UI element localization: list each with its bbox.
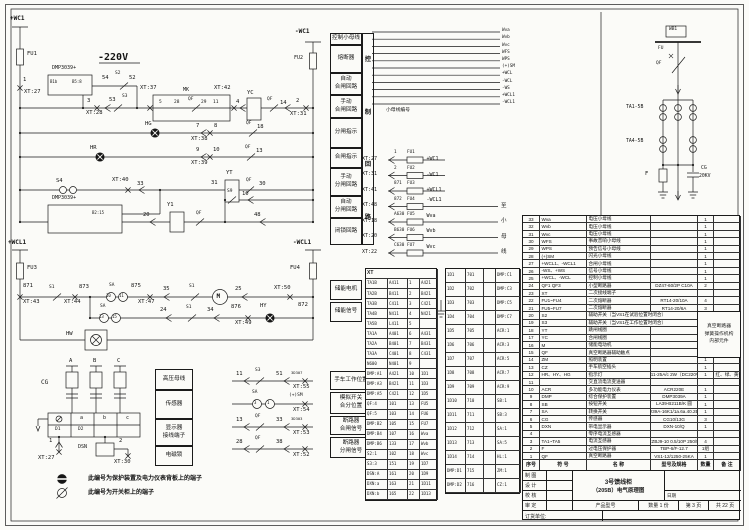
aux-table-cell: CZ:1 [496,479,521,493]
xt-table-cell: 1D1 [420,369,438,379]
aux-table-cell: ACR:9 [496,381,521,395]
to-bus-char: 线 [501,250,507,256]
wire-label: A [69,359,72,365]
xt-table-cell: 13 [408,400,420,410]
xt-table-cell: S2:1 [366,450,388,460]
fn-box-hv-bus: 高压母线 [155,369,193,390]
part-symbol: -WS、+WS [540,268,587,275]
aux-table-cell [484,465,496,479]
titleblock-order-unit: 订货单位: [523,511,603,521]
part-no: 25 [523,275,540,282]
part-note [714,364,741,371]
part-spec: RT14-20/10A [651,297,698,304]
part-no: 31 [523,231,540,238]
fn-box-display-terminal: 显示器接线端子 [155,419,193,446]
wire-label: Y1 [167,203,174,209]
xt-table-cell: DMP:B4 [366,430,388,440]
xt-table-cell: A421 [420,279,438,289]
drawing-title: 3号馈线柜 [605,477,632,486]
fuse-row-name: FU2 [407,167,415,171]
xt-table-cell: 7 [408,339,420,349]
part-no: 32 [523,223,540,230]
aux-table-cell: SB:1 [496,395,521,409]
aux-table-cell [484,409,496,423]
part-note [714,409,741,416]
aux-table-cell: DMP:C3 [496,283,521,297]
part-note [714,394,741,401]
part-no: 2 [523,446,540,453]
xt-table-cell: A421 [388,369,408,379]
part-note [714,246,741,253]
xt-table-cell: N401 [388,359,408,369]
aux-table-cell [484,269,496,283]
fuse-row-bus: -WCL1 [427,198,442,203]
parts-header-cell: 名 称 [587,460,651,470]
wire-label: S1 [49,286,54,291]
xt-table-cell: TA1B [366,279,388,289]
part-note [714,416,741,423]
fuse-row-wire-number: 2 [394,167,397,171]
xt-table-cell: 103 [388,410,408,420]
wire-label: QF [255,437,260,442]
aux-table-cell: 1D3 [446,297,466,311]
part-name: 事故音响小母线 [587,238,651,245]
part-spec [651,364,698,371]
aux-table-cell [484,437,496,451]
part-symbol: HR、HY、HG [540,372,587,379]
xt-table-cell: C401 [388,349,408,359]
part-symbol: ACR [540,386,587,393]
aux-table-cell: 708 [466,367,484,381]
parts-header-cell: 备 注 [714,460,741,470]
bus-line-label: Wva [502,29,510,33]
part-note [714,401,741,408]
titleblock-date-label: 日期 [665,491,741,501]
to-bus-char: 至 [501,204,507,210]
wire-label: 28 [174,101,179,106]
xt-table-cell: Wvc [420,450,438,460]
aux-table-cell: DMP:C7 [496,311,521,325]
wire-label: XT:37 [140,86,157,92]
xt-table-cell: 101 [388,400,408,410]
part-name: 小型断路器 [587,283,651,290]
wire-label: c [126,416,129,421]
wire-label: 24 [160,308,167,314]
wire-label: +WCL1 [8,240,26,246]
wire-label: XT:42 [214,86,231,92]
sl-arrester-label: F [645,172,648,178]
sl-ct1-label: TA1-5B [626,106,643,111]
part-name: 传感器 [587,416,651,423]
aux-table-cell: DMP:C5 [496,297,521,311]
part-qty: 4 [698,438,714,445]
aux-table-cell: 1D1 [446,269,466,283]
wire-label: 872 [298,303,308,309]
fn-box-close-indication: 合闸指示 [330,148,362,168]
xt-table-cell: 102 [388,450,408,460]
part-spec [651,223,698,230]
part-name: 带电显示器 [587,423,651,430]
fn-box-control-bus: 控制小母线 [330,33,362,45]
fuse-row-name: FU4 [407,198,415,202]
fuse-row-bus: Wvc [427,245,436,250]
xt-table-cell: 1 [408,279,420,289]
aux-table-cell [484,325,496,339]
xt-table-cell: C431 [420,349,438,359]
part-spec: CG10/13G [651,416,698,423]
xt-table-cell: TA1A [366,329,388,339]
part-spec [651,246,698,253]
part-no: 22 [523,297,540,304]
wire-label: -WCL1 [293,240,311,246]
xt-table-cell: TA3B [366,299,388,309]
part-symbol: S3 [540,320,587,327]
aux-table-cell: 1D4 [446,311,466,325]
to-bus-char: 母 [501,235,507,241]
part-qty: 1 [698,238,714,245]
fn-box-auto-trip: 自动分闸回路 [330,196,362,218]
xt-table-cell: 9 [408,359,420,369]
wire-label: 5 [159,101,162,106]
xt-table-cell: 6 [408,329,420,339]
aux-table-cell: 1D11 [446,409,466,423]
part-note [714,253,741,260]
aux-table-cell [484,311,496,325]
xt-table-cell: 1D9 [420,470,438,480]
part-name: 辅助开关（当VS1在工作位置时闭合） [587,320,698,327]
part-qty: 1 [698,394,714,401]
aux-table-cell [484,353,496,367]
part-name: 转换开关 [587,409,651,416]
bus-line-label: WPS [502,58,510,62]
schematic-sheet: +WC1FU11XT:27-220VDMP3039+B1bB5:83XT:285… [0,0,749,530]
wire-label: HG [145,122,152,128]
xt-table-cell: 107 [388,430,408,440]
xt-table-cell: 2 [408,289,420,299]
wire-label: 3 [87,99,90,105]
aux-table-cell: DMP:D2 [446,479,466,493]
bus-line-label: Wvc [502,44,510,48]
part-qty [698,431,714,438]
wire-label: 10 [242,192,249,198]
part-qty: 1组 [698,446,714,453]
xt-table-cell: N411 [388,309,408,319]
wire-label: XT:30 [114,460,131,466]
parts-header-cell: 符 号 [540,460,587,470]
bus-line-label: -WCL1 [502,101,515,105]
aux-table-cell: 712 [466,423,484,437]
wire-label: XT:50 [274,286,291,292]
part-name: 照明装置 [587,357,651,364]
wire-label: HR [90,146,97,152]
titleblock-cell [547,491,573,501]
aux-table-cell: 705 [466,325,484,339]
wire-label: B5:8 [72,80,82,84]
wire-label: 34 [207,308,214,314]
aux-table-cell [484,395,496,409]
part-symbol: SB [540,401,587,408]
aux-table-cell: 1D6 [446,339,466,353]
xt-table-cell: TA3A [366,349,388,359]
wire-label: 13 [99,315,104,319]
wire-label: QF [246,122,251,127]
fuse-row-bus: -WC1 [427,173,439,178]
wire-label: 18 [257,125,264,131]
wire-label: XT:31 [290,112,307,118]
wire-label: XT:44 [64,300,81,306]
xt-table-cell: 16 [408,430,420,440]
xt-table-cell: 151 [388,460,408,470]
wire-label: 1 [267,401,269,405]
part-symbol: WFS [540,238,587,245]
wire-label: 53 [109,98,116,104]
titleblock-pages: 共 22 页 [709,501,741,511]
wire-label: 54 [102,76,109,82]
bus-line-label: -WCL [502,80,512,84]
part-qty: 1 [698,260,714,267]
aux-table-cell: ACR:5 [496,353,521,367]
part-name: 闪光小母线 [587,253,651,260]
part-name: 跳闸线圈 [587,327,651,334]
terminal-table-aux: 1D1701DMP:C11D2702DMP:C31D3703DMP:C51D47… [445,268,520,494]
part-no: 14 [523,357,540,364]
wire-label: C [117,359,120,365]
fn-box-charging-signal: 储能信号 [330,302,362,322]
sl-ct2-label: TA4-5B [626,140,643,145]
fuse-row-name: FU6 [407,229,415,233]
sl-busbar-label: WB1 [669,28,677,33]
part-name: 真空断路器 [587,453,651,460]
aux-table-cell: 704 [466,311,484,325]
part-spec: VS1-12/1250-25KA [651,453,698,460]
part-name: 合闸小母线 [587,260,651,267]
xt-table-cell: TA2A [366,339,388,349]
titleblock-approve-label: 审 定 [523,501,547,511]
part-qty: 1 [698,275,714,282]
xt-table-cell: 1D5 [420,390,438,400]
aux-table-cell [484,423,496,437]
part-symbol: SA [540,409,587,416]
fn-box-control-circuit: 控制回路 [362,33,374,245]
part-symbol: M [540,342,587,349]
wire-label: YC [247,91,254,97]
wire-label: QF [255,415,260,420]
part-spec [651,231,698,238]
fn-box-sensor: 传感器 [155,390,193,419]
part-name: 指示灯 [587,372,651,379]
part-qty: 1 [698,268,714,275]
xt-table-cell [420,319,438,329]
part-spec: DMP3039A [651,394,698,401]
wire-label: 2 [296,99,299,105]
part-symbol: TA1~TA5 [540,438,587,445]
part-name: 辅助开关（当VS1在试验位置时闭合） [587,312,698,319]
part-qty: 1 [698,401,714,408]
titleblock-cell [547,501,573,511]
xt-table-cell: QF:4 [366,400,388,410]
part-qty: 1 [698,223,714,230]
wire-label: 14 [280,101,287,107]
xt-table-cell: QF:5 [366,410,388,420]
xt-table-cell: 14 [408,410,420,420]
bus-line-label: WFS [502,51,510,55]
wire-label: 871 [23,284,33,290]
aux-table-cell: 706 [466,339,484,353]
part-spec: DZ47-60/2P C10A [651,283,698,290]
fuse-row-name: FU5 [407,213,415,217]
part-qty: 1 [698,453,714,460]
wire-label: SA [100,305,105,310]
wire-label: B1b [50,80,57,84]
xt-table-cell: 8 [408,349,420,359]
xt-table-cell: DMP:A1 [366,369,388,379]
wire-label: 875 [131,284,141,290]
wire-label: XT:43 [23,300,40,306]
part-no: 6 [523,416,540,423]
part-no: 9 [523,394,540,401]
aux-table-cell: 713 [466,437,484,451]
wire-label: 38 [276,440,283,446]
xt-table-cell: 5 [408,319,420,329]
wire-label: 13 [256,149,263,155]
bus-line-label: Wvb [502,36,510,40]
part-symbol: (+)SM [540,253,587,260]
aux-table-cell: 1D7 [446,353,466,367]
part-note [714,268,741,275]
part-note [714,379,741,386]
parts-header-cell: 序号 [523,460,540,470]
part-symbol: FU5~FU7 [540,305,587,312]
xt-table-cell [420,359,438,369]
fn-box-charging-motor: 储能电机 [330,280,362,300]
part-no: 10 [523,386,540,393]
xt-table-cell: C411 [388,299,408,309]
xt-table-cell: DXN:a [366,480,388,490]
aux-table-cell: ACR:1 [496,325,521,339]
part-spec: ACR220E [651,386,698,393]
wire-label: b [103,416,106,421]
wire-label: MK [183,88,189,93]
wire-label: XT:27 [38,456,55,462]
part-spec [651,379,698,386]
aux-table-cell [484,381,496,395]
part-no: 11 [523,379,540,386]
xt-table-cell: DMP:A3 [366,379,388,389]
part-qty: 4 [698,297,714,304]
part-spec: AD11-25A/c 2W（DC220V） [651,372,698,379]
part-name: 合闸线圈 [587,335,651,342]
wire-label: QF [246,179,251,184]
xt-table-cell: FU6 [420,410,438,420]
part-no: 16 [523,342,540,349]
part-symbol: Wvc [540,231,587,238]
part-note [714,231,741,238]
part-spec: LZZBJ9-10 0.5/10P 250/5A [651,438,698,445]
mechanism-note: 真空断路器弹簧操作机构内部元件 [697,311,741,358]
fn-box-interlock: 闭锁回路 [330,218,362,245]
mechanism-note-line: 弹簧操作机构 [705,331,734,339]
wire-label: D1 [55,428,60,433]
fuse-row-wire-number: A630 [394,213,404,217]
wire-label: 52 [129,76,136,82]
fuse-row-bus: Wva [427,214,436,219]
aux-table-cell: 1D8 [446,367,466,381]
part-spec: LA39-B211B/K 圆 [651,401,698,408]
wire-label: S3 [255,369,260,374]
fuse-row-name: FU7 [407,244,415,248]
part-name: 按钮开关 [587,401,651,408]
aux-table-cell [484,367,496,381]
parts-header-cell: 型号及规格 [651,460,698,470]
xt-table-cell: N421 [420,309,438,319]
part-no: 13 [523,364,540,371]
part-qty: 1 [698,372,714,379]
wire-label: 2 [119,439,122,445]
part-name: 电压小母线 [587,231,651,238]
bus-line-label: +WCL [502,72,512,76]
part-note [714,216,741,223]
part-name: 控制小母线 [587,275,651,282]
wire-label: XT:47 [138,300,155,306]
fn-box-fuse: 熔断器 [330,45,362,73]
wire-label: 10 [213,148,220,154]
aux-table-cell: 1D12 [446,423,466,437]
part-qty [698,379,714,386]
part-symbol: QF [540,349,587,356]
wire-label: QF [196,212,201,217]
part-name: 预告信号小母线 [587,246,651,253]
titleblock-check-label: 校 核 [523,491,547,501]
xt-table-cell: 1D11 [420,480,438,490]
xt-table-cell: TA4B [366,309,388,319]
wire-label: 35 [163,287,170,293]
part-name: 电压小母线 [587,216,651,223]
part-spec [651,275,698,282]
part-symbol: Wvb [540,223,587,230]
wire-label: B [93,359,96,365]
xt-table-cell: B401 [388,339,408,349]
titleblock-cell [603,511,741,521]
xt-table-cell: 161 [388,470,408,480]
part-symbol [540,431,587,438]
wire-label: -WC1 [295,29,309,35]
wire-label: YT [226,171,233,177]
xt-table-cell: B421 [420,289,438,299]
titleblock-cell [547,481,573,491]
aux-table-cell [484,283,496,297]
aux-table-cell: SB:3 [496,409,521,423]
aux-table-cell: 1D5 [446,325,466,339]
wire-label: XT:54 [293,408,310,414]
part-note [714,260,741,267]
part-symbol: DXN [540,423,587,430]
xt-table-cell: 12 [408,390,420,400]
aux-table-cell: 709 [466,381,484,395]
part-name: 交直流电流变送器 [587,379,651,386]
part-no: 7 [523,409,540,416]
fuse-row-bus: Wvb [427,229,436,234]
wire-label: 11 [119,294,124,298]
wire-label: 15 [112,315,117,319]
part-note [714,423,741,430]
wire-label: S3 [122,95,127,100]
part-name: 二次熔断器 [587,297,651,304]
xt-table-cell: Wva [420,430,438,440]
part-qty: 1 [698,409,714,416]
titleblock-page: 第 3 页 [679,501,709,511]
wire-label: (+)SM [289,394,303,399]
xt-table-cell: 1D7 [420,460,438,470]
